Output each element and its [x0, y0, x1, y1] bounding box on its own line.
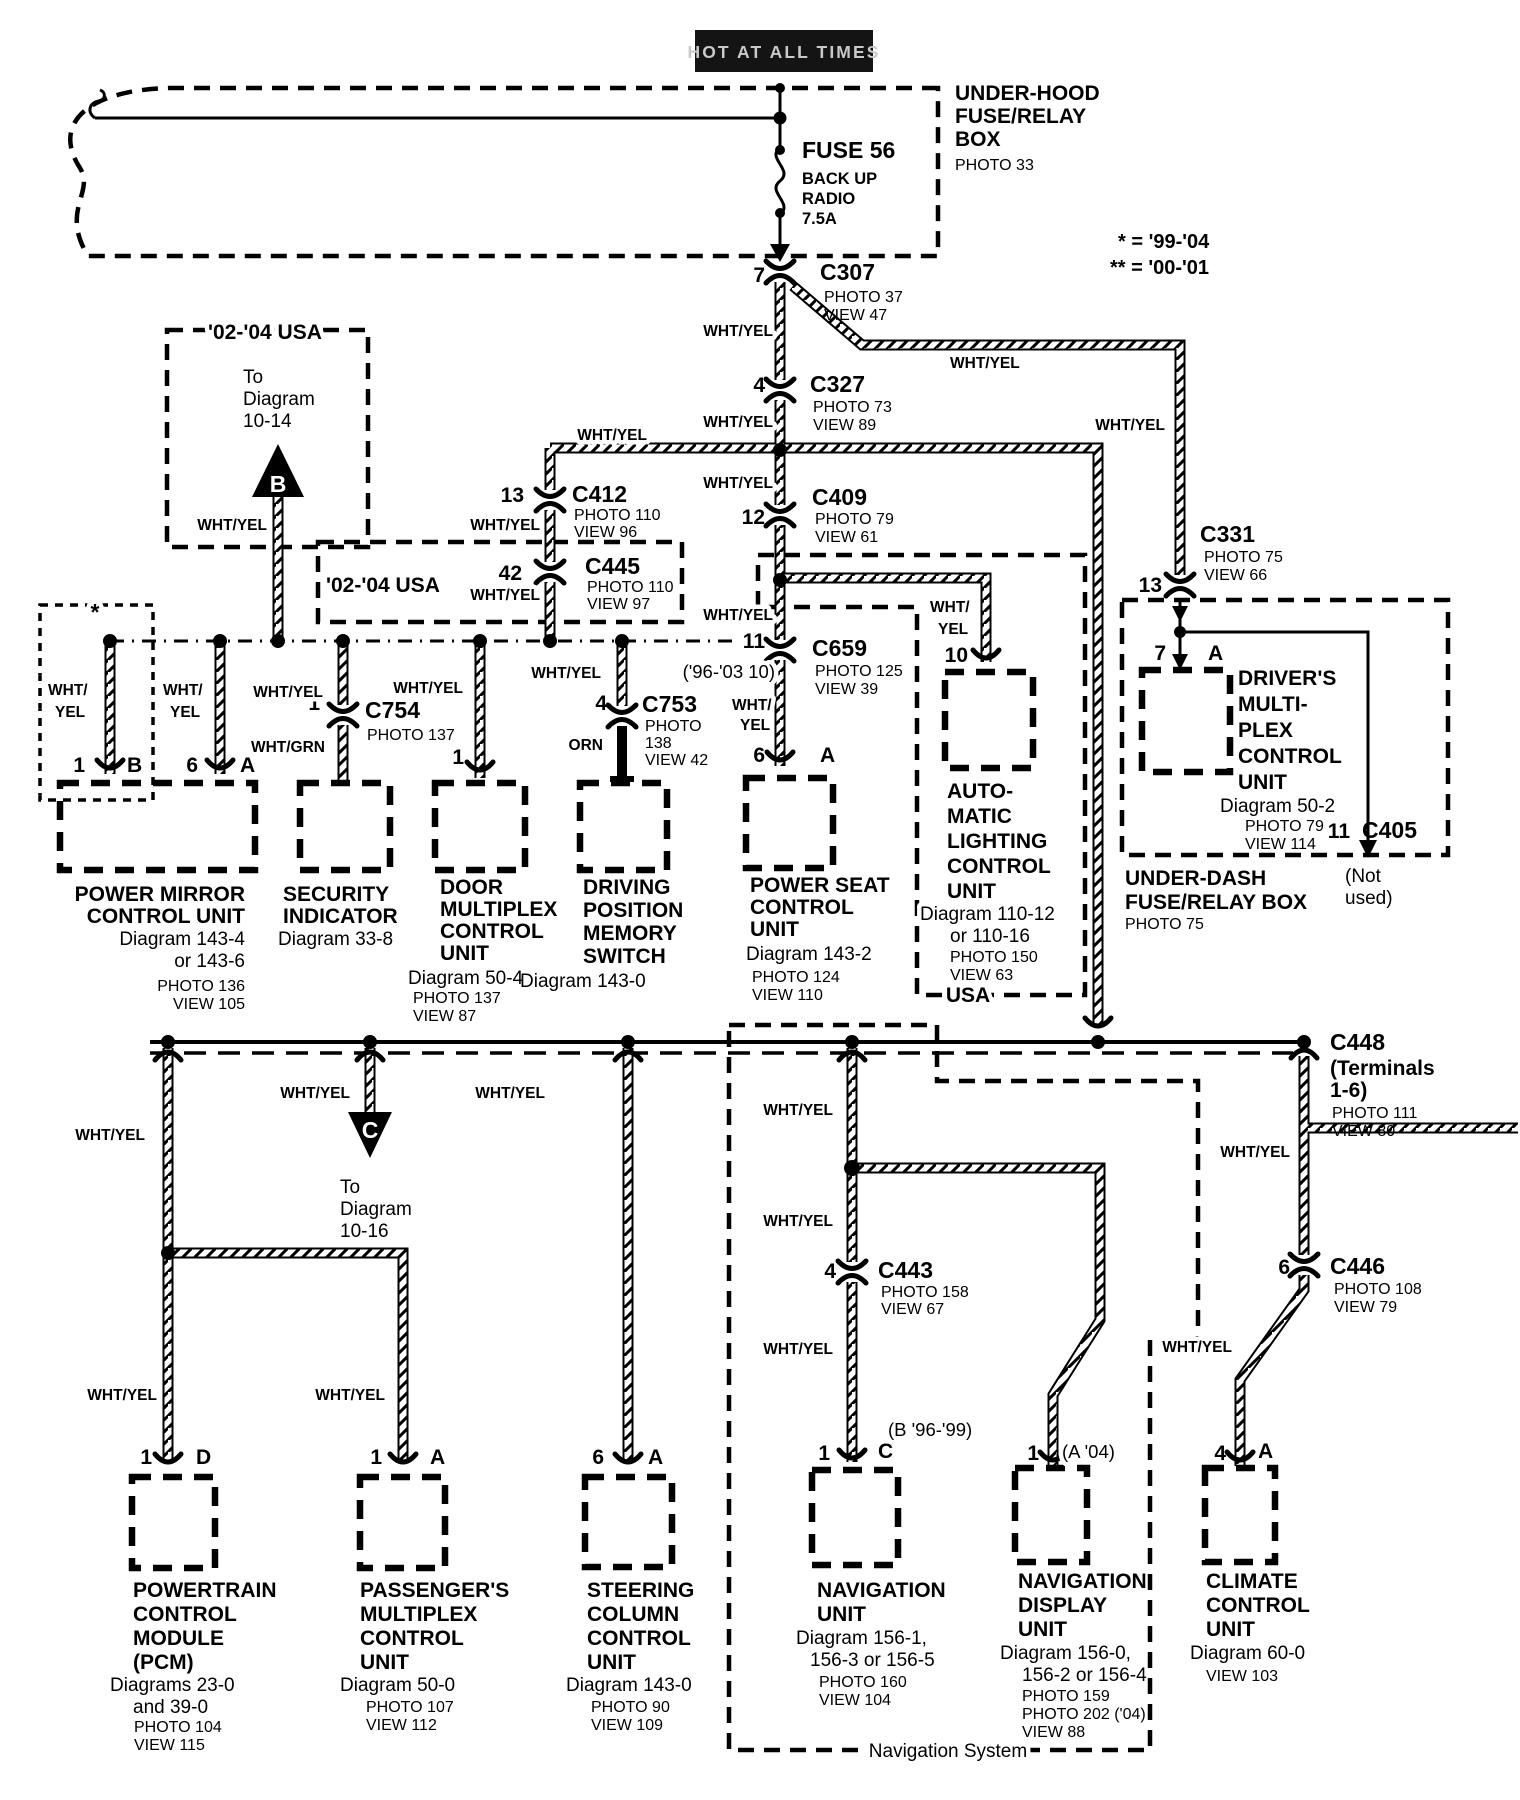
wire-label: WHT/YEL — [703, 607, 773, 624]
wire-label-wht-grn: WHT/GRN — [251, 739, 325, 756]
power-seat-name-2: CONTROL — [750, 896, 854, 919]
passenger-name-4: UNIT — [360, 1651, 409, 1674]
nav-display-view: VIEW 88 — [1022, 1724, 1085, 1741]
c659-view: VIEW 39 — [815, 681, 878, 698]
drivers-ref: Diagram 50-2 — [1220, 796, 1335, 817]
connector-c443-symbol — [838, 1261, 866, 1283]
auto-lighting-ref-1: Diagram 110-12 — [920, 904, 1055, 925]
drivers-name-2: MULTI- — [1238, 693, 1308, 716]
pcm-ref-2: and 39-0 — [133, 1697, 208, 1718]
wire-label: WHT/YEL — [475, 1085, 545, 1102]
wire-label: WHT/YEL — [577, 427, 647, 444]
wire-label: WHT/YEL — [1220, 1144, 1290, 1161]
wire-label: WHT/YEL — [470, 587, 540, 604]
c446-id: C446 — [1330, 1253, 1385, 1279]
c443-pin: 4 — [824, 1260, 836, 1283]
c446-photo: PHOTO 108 — [1334, 1281, 1422, 1298]
underhood-name-2: FUSE/RELAY — [955, 105, 1086, 128]
underhood-name-1: UNDER-HOOD — [955, 82, 1100, 105]
wire-label: YEL — [740, 717, 770, 734]
pcm-pin: 1 — [140, 1446, 152, 1469]
note-doublestar: ** = '00-'01 — [1110, 257, 1209, 279]
wire-label: WHT/ — [732, 697, 772, 714]
c659-note: ('96-'03 10) — [683, 661, 775, 682]
labels: UNDER-HOOD FUSE/RELAY BOX PHOTO 33 FUSE … — [48, 82, 1435, 1762]
door-mpx-pin: 1 — [452, 746, 464, 769]
c659-pin: 11 — [743, 630, 766, 653]
connector-c327-symbol — [766, 379, 794, 401]
wire-label: YEL — [55, 704, 85, 721]
connector-c754-symbol — [329, 704, 357, 726]
c443-id: C443 — [878, 1257, 933, 1283]
auto-lighting-photo: PHOTO 150 — [950, 949, 1038, 966]
marker-triangle-b: B — [252, 444, 304, 497]
marker-c-dest-1: To — [340, 1177, 360, 1198]
c659-photo: PHOTO 125 — [815, 663, 903, 680]
c409-photo: PHOTO 79 — [815, 511, 894, 528]
c443-view: VIEW 67 — [881, 1301, 944, 1318]
power-mirror-view: VIEW 105 — [173, 996, 245, 1013]
pcm-name-3: MODULE — [133, 1627, 224, 1650]
c405-note-1: (Not — [1345, 866, 1382, 887]
hot-at-all-times-tag: HOT AT ALL TIMES — [687, 30, 880, 72]
power-seat-pin: 6 — [753, 744, 765, 767]
pcm-name-1: POWERTRAIN — [133, 1579, 277, 1602]
fuse-desc-3: 7.5A — [802, 210, 837, 228]
marker-c-letter: C — [362, 1117, 379, 1143]
pcm-ref-1: Diagrams 23-0 — [110, 1675, 235, 1696]
steering-photo: PHOTO 90 — [591, 1699, 670, 1716]
marker-b-letter: B — [270, 471, 287, 497]
wire-label: WHT/YEL — [87, 1387, 157, 1404]
c331-pin: 13 — [1139, 574, 1162, 597]
fuse-element — [776, 148, 784, 215]
wire-label: WHT/ — [930, 599, 970, 616]
nav-unit-view: VIEW 104 — [819, 1692, 891, 1709]
c327-pin: 4 — [753, 374, 765, 397]
security-name-2: INDICATOR — [283, 905, 398, 928]
c331-view: VIEW 66 — [1204, 567, 1267, 584]
wire-label: WHT/YEL — [531, 665, 601, 682]
power-seat-ref: Diagram 143-2 — [746, 944, 872, 965]
underhood-photo: PHOTO 33 — [955, 157, 1034, 174]
c754-id: C754 — [365, 697, 420, 723]
wire-label: YEL — [938, 621, 968, 638]
pcm-name-2: CONTROL — [133, 1603, 237, 1626]
usa-label: USA — [946, 984, 990, 1007]
fuse-desc-2: RADIO — [802, 190, 855, 208]
security-ref: Diagram 33-8 — [278, 929, 393, 950]
star-label: * — [91, 599, 100, 625]
pcm-box — [132, 1477, 215, 1568]
usa-0204-upper-label: '02-'04 USA — [208, 321, 322, 344]
c327-view: VIEW 89 — [813, 417, 876, 434]
nav-unit-pin-letter: C — [878, 1440, 893, 1463]
c446-pin: 6 — [1278, 1256, 1290, 1279]
drivers-name-5: UNIT — [1238, 771, 1287, 794]
door-ref: Diagram 50-4 — [408, 968, 524, 989]
security-name-1: SECURITY — [283, 883, 389, 906]
power-mirror-pin2: 6 — [186, 754, 198, 777]
wire-label: WHT/YEL — [1095, 417, 1165, 434]
wire-label: WHT/YEL — [197, 517, 267, 534]
door-name-4: UNIT — [440, 942, 489, 965]
nav-unit-pin: 1 — [818, 1442, 830, 1465]
wire-label-orn: ORN — [569, 737, 603, 754]
marker-c-dest-2: Diagram — [340, 1199, 412, 1220]
wire-label: WHT/YEL — [75, 1127, 145, 1144]
wire-label: WHT/ — [163, 682, 203, 699]
drivers-multiplex-box — [1142, 670, 1230, 772]
steering-name-2: COLUMN — [587, 1603, 679, 1626]
pcm-photo: PHOTO 104 — [134, 1719, 222, 1736]
note-star: * = '99-'04 — [1118, 231, 1210, 253]
nav-display-pin: 1 — [1027, 1442, 1039, 1465]
c307-id: C307 — [820, 259, 875, 285]
nav-display-photo-2: PHOTO 202 ('04) — [1022, 1706, 1146, 1723]
nav-display-ref-1: Diagram 156-0, — [1000, 1643, 1131, 1664]
c448-terminals-2: 1-6) — [1330, 1079, 1367, 1102]
c405-note-2: used) — [1345, 888, 1393, 909]
auto-lighting-name-4: CONTROL — [947, 855, 1051, 878]
steering-pin-letter: A — [648, 1446, 663, 1469]
nav-display-name-3: UNIT — [1018, 1618, 1067, 1641]
underdash-photo: PHOTO 75 — [1125, 916, 1204, 933]
c307-pin: 7 — [753, 264, 765, 287]
door-multiplex-box — [435, 783, 525, 870]
door-view: VIEW 87 — [413, 1008, 476, 1025]
door-photo: PHOTO 137 — [413, 990, 501, 1007]
climate-name-1: CLIMATE — [1206, 1570, 1298, 1593]
pcm-name-4: (PCM) — [133, 1651, 194, 1674]
c659-id: C659 — [812, 635, 867, 661]
connector-c446-symbol — [1290, 1254, 1318, 1276]
wire-label: WHT/YEL — [763, 1102, 833, 1119]
passenger-ref: Diagram 50-0 — [340, 1675, 455, 1696]
c412-pin: 13 — [501, 484, 524, 507]
c445-id: C445 — [585, 553, 640, 579]
door-name-2: MULTIPLEX — [440, 898, 557, 921]
steering-name-1: STEERING — [587, 1579, 694, 1602]
power-mirror-name-2: CONTROL UNIT — [87, 905, 245, 928]
pcm-pin-letter: D — [196, 1446, 211, 1469]
nav-display-name-1: NAVIGATION — [1018, 1570, 1147, 1593]
c412-photo: PHOTO 110 — [574, 507, 661, 524]
passenger-photo: PHOTO 107 — [366, 1699, 454, 1716]
steering-name-4: UNIT — [587, 1651, 636, 1674]
c754-photo: PHOTO 137 — [367, 727, 455, 744]
drivers-name-1: DRIVER'S — [1238, 667, 1336, 690]
power-mirror-photo: PHOTO 136 — [157, 978, 245, 995]
power-mirror-ref-1: Diagram 143-4 — [119, 929, 245, 950]
c412-id: C412 — [572, 481, 627, 507]
c409-id: C409 — [812, 484, 867, 510]
c307-photo: PHOTO 37 — [824, 289, 903, 306]
auto-lighting-name-5: UNIT — [947, 880, 996, 903]
steering-column-box — [585, 1477, 672, 1567]
nav-unit-name-2: UNIT — [817, 1603, 866, 1626]
c331-photo: PHOTO 75 — [1204, 549, 1283, 566]
fuse-desc-1: BACK UP — [802, 170, 877, 188]
connector-c409-symbol — [766, 504, 794, 526]
driving-ref: Diagram 143-0 — [520, 971, 646, 992]
marker-b-dest-2: Diagram — [243, 389, 315, 410]
wire-label: WHT/YEL — [763, 1341, 833, 1358]
power-mirror-pin1-letter: B — [127, 754, 142, 777]
nav-unit-name-1: NAVIGATION — [817, 1579, 946, 1602]
wire-label: YEL — [170, 704, 200, 721]
marker-b-dest-1: To — [243, 367, 263, 388]
nav-unit-ref-2: 156-3 or 156-5 — [810, 1650, 935, 1671]
security-indicator-box — [300, 783, 390, 870]
driving-name-3: MEMORY — [583, 922, 677, 945]
wire-label: WHT/YEL — [950, 355, 1020, 372]
underdash-name-2: FUSE/RELAY BOX — [1125, 891, 1307, 914]
wire-label: WHT/YEL — [1162, 1339, 1232, 1356]
driving-name-2: POSITION — [583, 899, 683, 922]
c405-pin: 11 — [1328, 820, 1351, 843]
nav-display-photo-1: PHOTO 159 — [1022, 1688, 1110, 1705]
auto-lighting-ref-2: or 110-16 — [950, 926, 1030, 947]
c448-id: C448 — [1330, 1029, 1385, 1055]
marker-c-dest-3: 10-16 — [340, 1221, 389, 1242]
underhood-name-3: BOX — [955, 128, 1001, 151]
fuse-exit-arrow — [770, 244, 790, 262]
passenger-pin-letter: A — [430, 1446, 445, 1469]
climate-pin-letter: A — [1258, 1440, 1273, 1463]
underdash-name-1: UNDER-DASH — [1125, 867, 1266, 890]
wire-label: WHT/YEL — [703, 475, 773, 492]
fuse-name: FUSE 56 — [802, 137, 895, 163]
fuse-feed-wire — [95, 88, 780, 246]
wire-label: WHT/YEL — [470, 517, 540, 534]
passenger-multiplex-box — [360, 1477, 445, 1568]
marker-triangle-c: C — [348, 1112, 392, 1158]
power-mirror-name-1: POWER MIRROR — [75, 883, 245, 906]
connector-c412-symbol — [536, 489, 564, 511]
diagram-svg: B C HOT AT ALL TIMES UNDER-HOOD FUSE/REL… — [0, 0, 1520, 1800]
power-seat-pin-letter: A — [820, 744, 835, 767]
drivers-mpx-pin-letter: A — [1208, 642, 1223, 665]
c753-id: C753 — [642, 691, 697, 717]
drivers-view: VIEW 114 — [1245, 836, 1316, 853]
power-seat-box — [746, 778, 833, 868]
connector-c659-symbol — [766, 639, 794, 661]
drivers-name-4: CONTROL — [1238, 745, 1342, 768]
c412-view: VIEW 96 — [574, 524, 637, 541]
usa-0204-upper-box — [167, 330, 368, 547]
drivers-mpx-pin: 7 — [1154, 642, 1166, 665]
drivers-name-3: PLEX — [1238, 719, 1293, 742]
c409-pin: 12 — [742, 506, 765, 529]
c327-id: C327 — [810, 371, 865, 397]
climate-name-2: CONTROL — [1206, 1594, 1310, 1617]
marker-b-dest-3: 10-14 — [243, 411, 292, 432]
pcm-view: VIEW 115 — [134, 1737, 205, 1754]
wire-label: WHT/YEL — [703, 414, 773, 431]
power-mirror-pin1: 1 — [73, 754, 85, 777]
nav-display-ref-2: 156-2 or 156-4 — [1022, 1665, 1147, 1686]
wire-label: WHT/YEL — [703, 323, 773, 340]
c448-terminals-1: (Terminals — [1330, 1057, 1435, 1080]
c327-photo: PHOTO 73 — [813, 399, 892, 416]
climate-pin: 4 — [1214, 1442, 1226, 1465]
passenger-name-2: MULTIPLEX — [360, 1603, 477, 1626]
c445-pin: 42 — [499, 562, 522, 585]
nav-unit-ref-1: Diagram 156-1, — [796, 1628, 927, 1649]
underdash-entry-arrow — [1172, 606, 1188, 622]
wire-label: WHT/YEL — [315, 1387, 385, 1404]
steering-ref: Diagram 143-0 — [566, 1675, 692, 1696]
c753-line1: PHOTO — [645, 718, 702, 735]
driving-name-1: DRIVING — [583, 876, 671, 899]
wire-label: WHT/YEL — [280, 1085, 350, 1102]
steering-name-3: CONTROL — [587, 1627, 691, 1650]
c448-photo: PHOTO 111 — [1332, 1105, 1417, 1122]
wht-yel-wires — [110, 262, 1518, 1466]
climate-view: VIEW 103 — [1206, 1668, 1278, 1685]
c446-view: VIEW 79 — [1334, 1299, 1397, 1316]
door-name-1: DOOR — [440, 876, 503, 899]
nav-unit-box — [812, 1470, 898, 1565]
power-seat-view: VIEW 110 — [752, 987, 823, 1004]
passenger-name-3: CONTROL — [360, 1627, 464, 1650]
passenger-pin: 1 — [370, 1446, 382, 1469]
usa-0204-lower-label: '02-'04 USA — [326, 574, 440, 597]
nav-display-name-2: DISPLAY — [1018, 1594, 1107, 1617]
wire-label: WHT/YEL — [763, 1213, 833, 1230]
wire-label: WHT/ — [48, 682, 88, 699]
nav-display-note: (A '04) — [1062, 1441, 1115, 1462]
usa-region-box — [758, 555, 1085, 995]
passenger-name-1: PASSENGER'S — [360, 1579, 509, 1602]
nav-unit-photo: PHOTO 160 — [819, 1674, 907, 1691]
driving-position-box — [580, 783, 667, 870]
c445-photo: PHOTO 110 — [587, 579, 674, 596]
passenger-view: VIEW 112 — [366, 1717, 437, 1734]
auto-lighting-name-2: MATIC — [947, 805, 1012, 828]
auto-lighting-pin: 10 — [945, 644, 968, 667]
power-mirror-box — [60, 783, 255, 870]
c405-id: C405 — [1362, 817, 1417, 843]
navigation-system-label: Navigation System — [869, 1741, 1027, 1762]
auto-lighting-view: VIEW 63 — [950, 967, 1013, 984]
auto-lighting-name-1: AUTO- — [947, 780, 1013, 803]
wire-end-prongs — [97, 650, 1317, 1462]
c409-view: VIEW 61 — [815, 529, 878, 546]
c331-id: C331 — [1200, 521, 1255, 547]
climate-name-3: UNIT — [1206, 1618, 1255, 1641]
power-seat-photo: PHOTO 124 — [752, 969, 840, 986]
power-seat-name-1: POWER SEAT — [750, 874, 890, 897]
nav-display-box — [1015, 1468, 1087, 1562]
power-mirror-pin2-letter: A — [240, 754, 255, 777]
connector-c307-symbol — [766, 261, 794, 283]
c307-view: VIEW 47 — [824, 307, 887, 324]
auto-lighting-name-3: LIGHTING — [947, 830, 1047, 853]
c443-photo: PHOTO 158 — [881, 1284, 969, 1301]
door-name-3: CONTROL — [440, 920, 544, 943]
driving-name-4: SWITCH — [583, 945, 666, 968]
auto-lighting-box — [945, 672, 1033, 768]
power-seat-name-3: UNIT — [750, 918, 799, 941]
climate-box — [1205, 1468, 1275, 1562]
wiring-diagram: B C HOT AT ALL TIMES UNDER-HOOD FUSE/REL… — [0, 0, 1520, 1800]
climate-ref: Diagram 60-0 — [1190, 1643, 1305, 1664]
c753-line3: VIEW 42 — [645, 752, 708, 769]
connector-c331-symbol — [1166, 574, 1194, 596]
drivers-photo: PHOTO 79 — [1245, 818, 1324, 835]
hot-tag-label: HOT AT ALL TIMES — [687, 42, 880, 62]
power-mirror-ref-2: or 143-6 — [174, 951, 245, 972]
wire-label: WHT/YEL — [253, 684, 323, 701]
wire-label: WHT/YEL — [393, 680, 463, 697]
steering-view: VIEW 109 — [591, 1717, 663, 1734]
steering-pin: 6 — [592, 1446, 604, 1469]
c448-view: VIEW 80 — [1332, 1123, 1395, 1140]
connector-c445-symbol — [536, 561, 564, 583]
c753-line2: 138 — [645, 735, 672, 752]
c753-pin: 4 — [595, 692, 607, 715]
c445-view: VIEW 97 — [587, 596, 650, 613]
nav-unit-note: (B '96-'99) — [888, 1419, 972, 1440]
connector-c753-symbol — [608, 705, 636, 727]
